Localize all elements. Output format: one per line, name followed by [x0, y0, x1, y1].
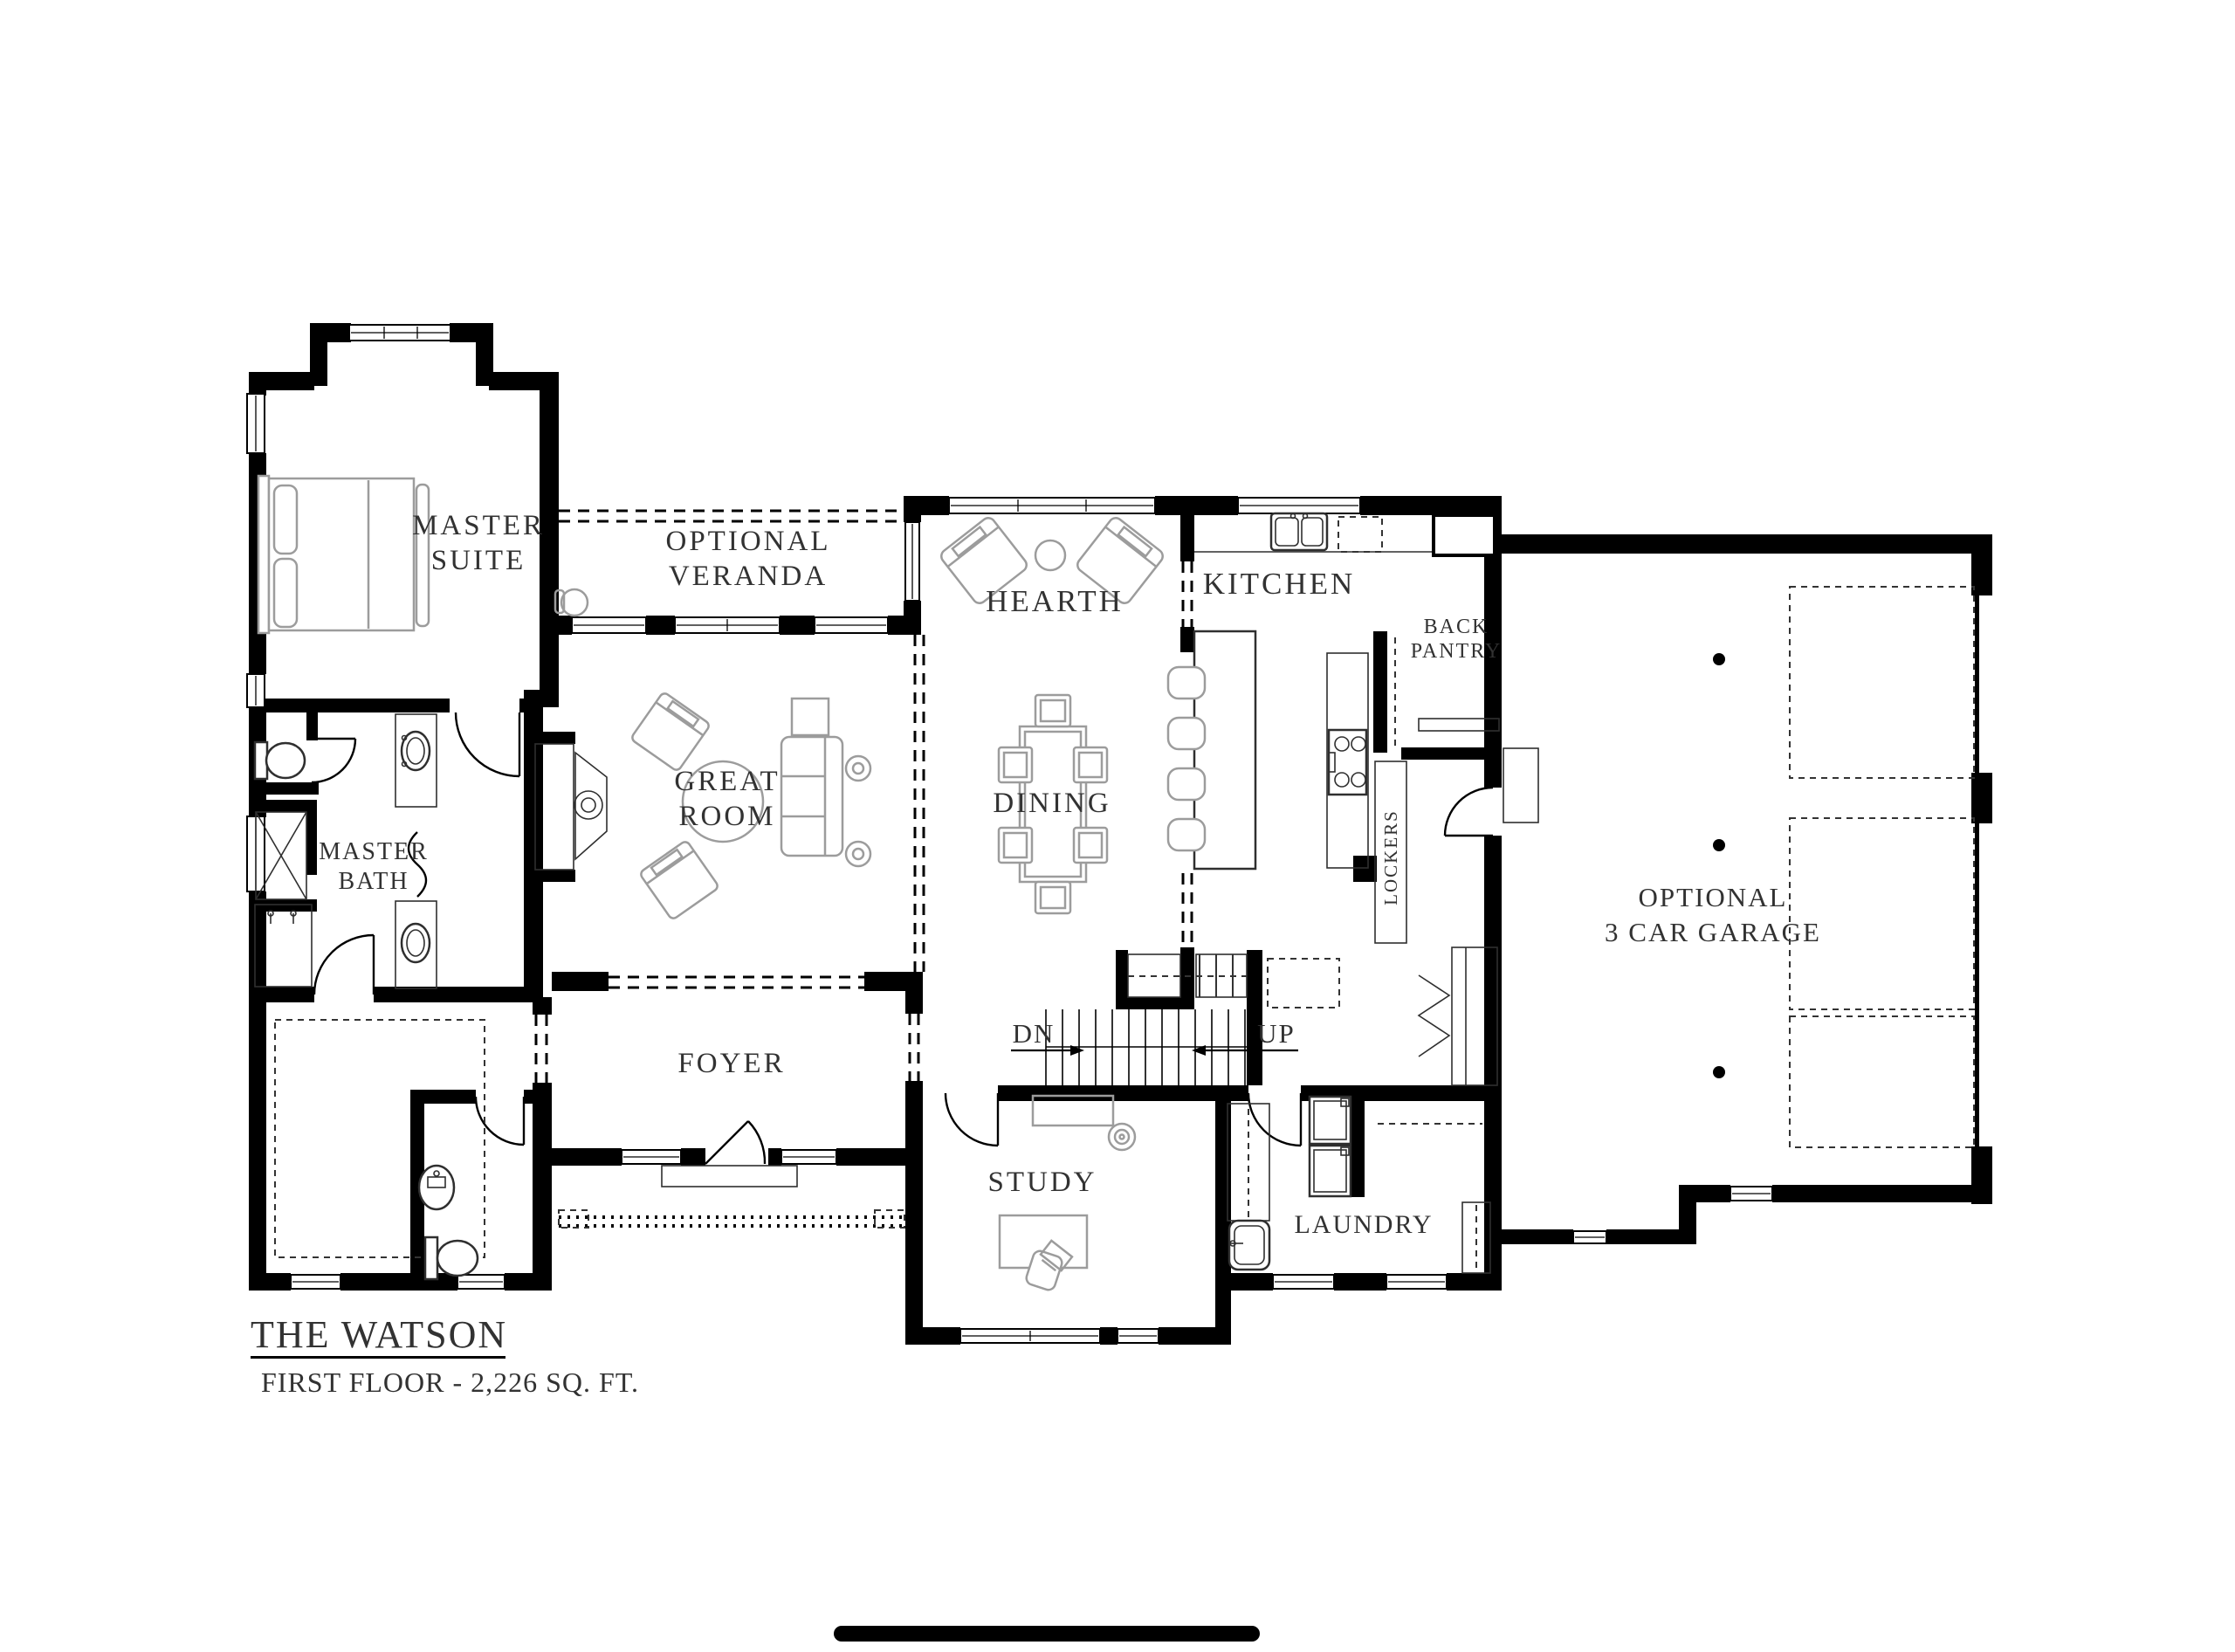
vanity-sink-bottom [395, 901, 437, 988]
window [1386, 1275, 1447, 1289]
toilet [425, 1237, 478, 1279]
stoop [662, 1166, 797, 1187]
room-label-laundry: LAUNDRY [1294, 1210, 1433, 1239]
washer [1310, 1097, 1351, 1144]
plan-title: THE WATSON [251, 1313, 507, 1356]
great-room: GREAT ROOM [535, 692, 870, 920]
window [572, 617, 646, 633]
garage-door-track [1790, 587, 1974, 778]
master-bath: MASTER BATH [255, 714, 437, 988]
laundry-door [1248, 1093, 1301, 1146]
window [349, 325, 450, 341]
floor-plan-page: MASTER SUITE MASTER BATH FOYER OPTIONAL … [0, 0, 2235, 1652]
window [960, 1329, 1100, 1343]
title-block: THE WATSON FIRST FLOOR - 2,226 SQ. FT. [251, 1313, 639, 1398]
bar-stool [1168, 718, 1205, 749]
room-label-garage-line2: 3 CAR GARAGE [1605, 917, 1821, 947]
window [1117, 1329, 1159, 1343]
study-door [946, 1093, 998, 1146]
room-label-great-room-line1: GREAT [674, 766, 780, 797]
garage-door-track [1790, 818, 1974, 1009]
window [675, 617, 780, 633]
window [247, 674, 265, 707]
master-suite: MASTER SUITE [258, 476, 545, 633]
dining-chair [999, 747, 1032, 782]
refrigerator [1338, 517, 1382, 552]
stair-treads [1046, 954, 1247, 1085]
floor-plan-drawing: MASTER SUITE MASTER BATH FOYER OPTIONAL … [0, 0, 2235, 1652]
window [1273, 1275, 1334, 1289]
bed [258, 476, 429, 633]
window [622, 1150, 681, 1164]
window [905, 522, 919, 601]
title-underline [251, 1356, 505, 1359]
room-label-master-bath-line2: BATH [338, 868, 409, 895]
garage: OPTIONAL 3 CAR GARAGE [1605, 587, 1974, 1147]
room-label-back-pantry-line1: BACK [1424, 616, 1489, 638]
hearth-room: HEARTH [939, 515, 1166, 618]
bar-stool [1168, 819, 1205, 850]
bar-stool [1168, 667, 1205, 699]
scale-bar [834, 1626, 1260, 1642]
window [781, 1150, 836, 1164]
room-label-back-pantry-line2: PANTRY [1411, 640, 1502, 663]
room-label-hearth: HEARTH [986, 584, 1124, 618]
stairs-up-label: UP [1257, 1018, 1296, 1049]
dining-chair [1074, 747, 1107, 782]
vanity-sink-top [395, 714, 437, 807]
front-door [705, 1121, 765, 1164]
optional-veranda: OPTIONAL VERANDA [555, 526, 830, 616]
window [815, 617, 888, 633]
window [1573, 1231, 1606, 1243]
window [1238, 498, 1360, 513]
stair-hall-closet [1268, 959, 1339, 1008]
water-closet-door [312, 739, 355, 782]
kitchen-sink [1271, 513, 1327, 550]
fireplace [535, 732, 607, 882]
powder-door [476, 1097, 524, 1145]
porch-edge [559, 1210, 905, 1228]
window [291, 1275, 340, 1289]
window [457, 1275, 505, 1289]
utility-sink [1229, 1221, 1269, 1270]
room-label-master-bath-line1: MASTER [319, 838, 429, 865]
round-table [1035, 540, 1065, 570]
closet-door [314, 935, 374, 995]
bistro-table [555, 589, 588, 616]
ceiling-fan [1109, 1124, 1135, 1150]
armchair [639, 840, 719, 920]
range [1329, 730, 1366, 795]
desk-chair [1025, 1249, 1064, 1292]
room-label-master-suite-line2: SUITE [431, 545, 526, 576]
side-table [846, 842, 870, 866]
room-label-veranda-line1: OPTIONAL [666, 526, 831, 557]
dining-area: DINING [993, 695, 1111, 913]
sofa [781, 737, 842, 856]
room-label-master-suite-line1: MASTER [412, 510, 545, 541]
master-bath-door [456, 712, 519, 776]
console-table [792, 699, 829, 735]
window [1730, 1187, 1772, 1201]
garage-entry-door [1445, 788, 1493, 836]
garage-stoop [1503, 748, 1538, 823]
armchair [630, 692, 711, 772]
dining-chair [999, 828, 1032, 863]
stairs: DN UP [1011, 954, 1339, 1085]
room-label-foyer: FOYER [677, 1048, 785, 1079]
room-label-dining: DINING [993, 788, 1111, 819]
side-table [846, 756, 870, 781]
garage-door-track [1790, 1016, 1974, 1147]
walk-in-closet [275, 1020, 485, 1257]
study: STUDY [987, 1096, 1135, 1291]
dining-chair [1035, 882, 1070, 913]
kitchen: KITCHEN BACK PANTRY [1168, 513, 1502, 869]
stairs-down-label: DN [1013, 1018, 1056, 1049]
room-label-garage-line1: OPTIONAL [1639, 882, 1788, 912]
bar-stool [1168, 768, 1205, 800]
coat-hooks [1419, 975, 1449, 1057]
room-label-great-room-line2: ROOM [678, 801, 775, 832]
plan-subtitle: FIRST FLOOR - 2,226 SQ. FT. [261, 1366, 639, 1398]
column-dot [1713, 839, 1725, 851]
closet-shelving [275, 1020, 485, 1257]
dining-chair [1074, 828, 1107, 863]
room-label-veranda-line2: VERANDA [669, 561, 828, 592]
wall-oven-cabinet [1434, 515, 1495, 555]
toilet [255, 742, 305, 779]
room-label-study: STUDY [987, 1167, 1097, 1198]
room-label-kitchen: KITCHEN [1203, 567, 1356, 601]
label-lockers: LOCKERS [1380, 809, 1401, 905]
powder-room [419, 1166, 478, 1279]
window [949, 498, 1155, 513]
pedestal-sink [419, 1166, 454, 1209]
dining-chair [1035, 695, 1070, 726]
dryer [1310, 1146, 1351, 1196]
column-dot [1713, 653, 1725, 665]
column-dot [1713, 1066, 1725, 1078]
window [247, 394, 265, 453]
